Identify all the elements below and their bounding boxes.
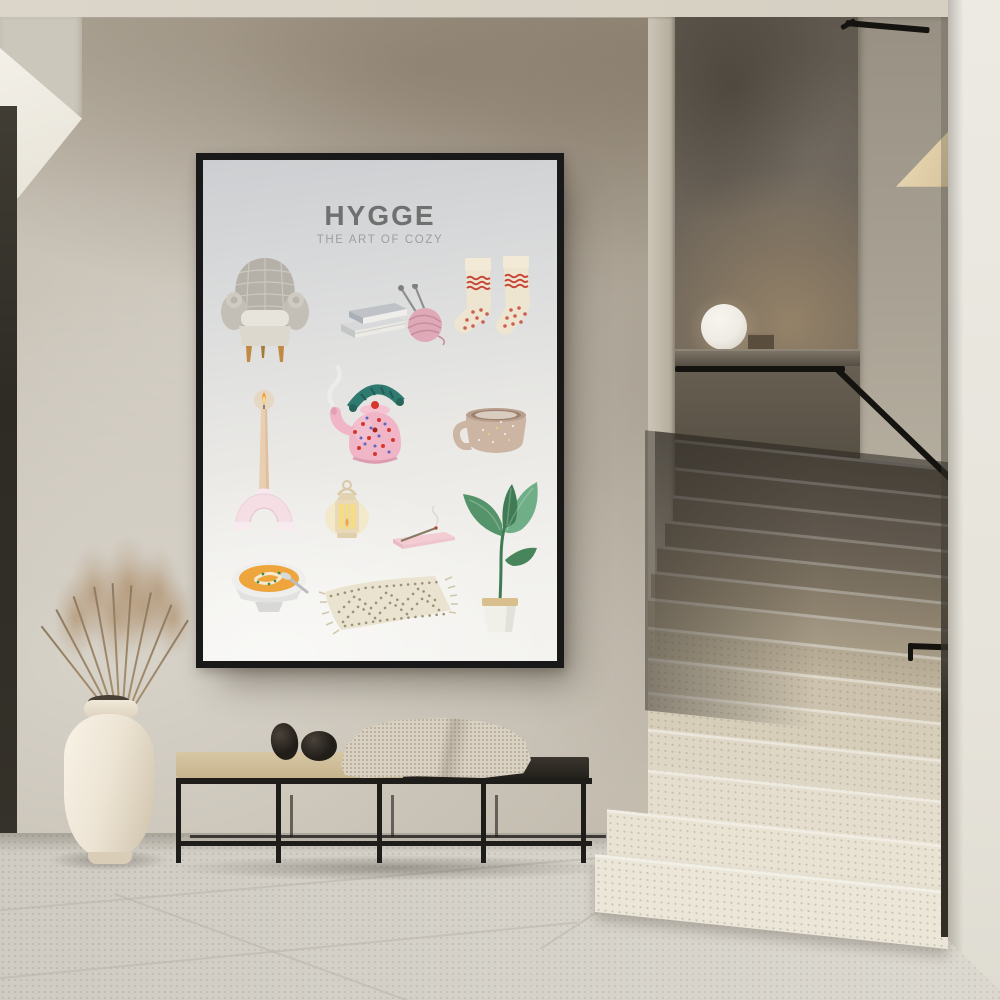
armchair-illustration <box>213 250 317 368</box>
vase-foot <box>88 852 132 864</box>
floor-seam <box>0 921 577 980</box>
bench-group <box>170 695 610 875</box>
bench-rear-rail <box>190 835 606 838</box>
rug-illustration <box>315 570 461 636</box>
poster-frame: HYGGE THE ART OF COZY <box>196 153 564 668</box>
handrail-upper <box>675 366 845 372</box>
socks-illustration <box>451 254 545 354</box>
bench-rear-leg <box>391 795 394 837</box>
incense-icon <box>389 506 459 551</box>
poster-subtitle: THE ART OF COZY <box>203 234 557 246</box>
stair-shadow <box>645 430 815 728</box>
bench-rear-leg <box>495 795 498 837</box>
bench-leg <box>377 784 382 863</box>
bench-bottom-rail <box>176 841 592 846</box>
mug-illustration <box>453 404 539 456</box>
bench-leg <box>176 784 181 863</box>
sphere-lamp <box>701 304 747 350</box>
kettle-illustration <box>317 364 425 478</box>
staircase-steps <box>595 425 948 1000</box>
ceiling <box>0 0 1000 18</box>
books-and-yarn-icon <box>335 284 447 346</box>
right-wall <box>948 0 1000 1000</box>
bench-leg <box>581 784 586 863</box>
armchair-icon <box>213 250 317 368</box>
wool-socks-icon <box>451 254 545 354</box>
bench-top-rail <box>176 778 592 784</box>
potted-plant-icon <box>455 474 543 636</box>
ceramic-vase <box>64 714 154 856</box>
lantern-illustration <box>324 480 370 550</box>
candle-illustration <box>231 386 297 534</box>
bench-rear-leg <box>290 795 293 837</box>
kettle-icon <box>317 364 425 478</box>
poster-print: HYGGE THE ART OF COZY <box>203 160 557 661</box>
candle-arch-icon <box>231 386 297 534</box>
decorative-stone <box>301 731 337 761</box>
interior-scene: HYGGE THE ART OF COZY <box>0 0 1000 1000</box>
bench-leg <box>276 784 281 863</box>
incense-illustration <box>389 506 459 551</box>
mug-icon <box>453 404 539 456</box>
knit-blanket <box>341 718 531 778</box>
rug-icon <box>315 570 461 636</box>
poster-title: HYGGE <box>203 200 557 232</box>
handrail-bracket-hook <box>908 643 913 661</box>
bench-leg <box>481 784 486 863</box>
soup-bowl-icon <box>227 554 311 620</box>
door-frame-edge <box>0 106 17 856</box>
soup-illustration <box>227 554 311 620</box>
lantern-icon <box>324 480 370 550</box>
plant-illustration <box>455 474 543 636</box>
books-illustration <box>335 284 447 346</box>
